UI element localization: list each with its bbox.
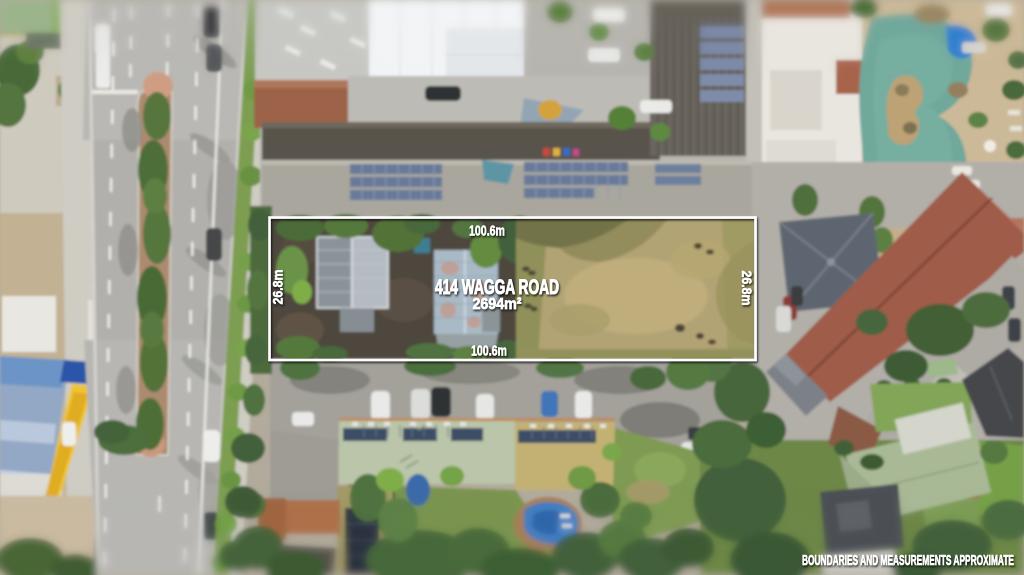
svg-text:2694m²: 2694m² (473, 296, 522, 313)
svg-text:26.8m: 26.8m (739, 271, 754, 306)
svg-text:BOUNDARIES AND MEASUREMENTS AP: BOUNDARIES AND MEASUREMENTS APPROXIMATE (802, 552, 1014, 569)
svg-text:100.6m: 100.6m (469, 224, 505, 240)
svg-text:100.6m: 100.6m (471, 344, 507, 360)
svg-text:26.8m: 26.8m (271, 270, 286, 305)
